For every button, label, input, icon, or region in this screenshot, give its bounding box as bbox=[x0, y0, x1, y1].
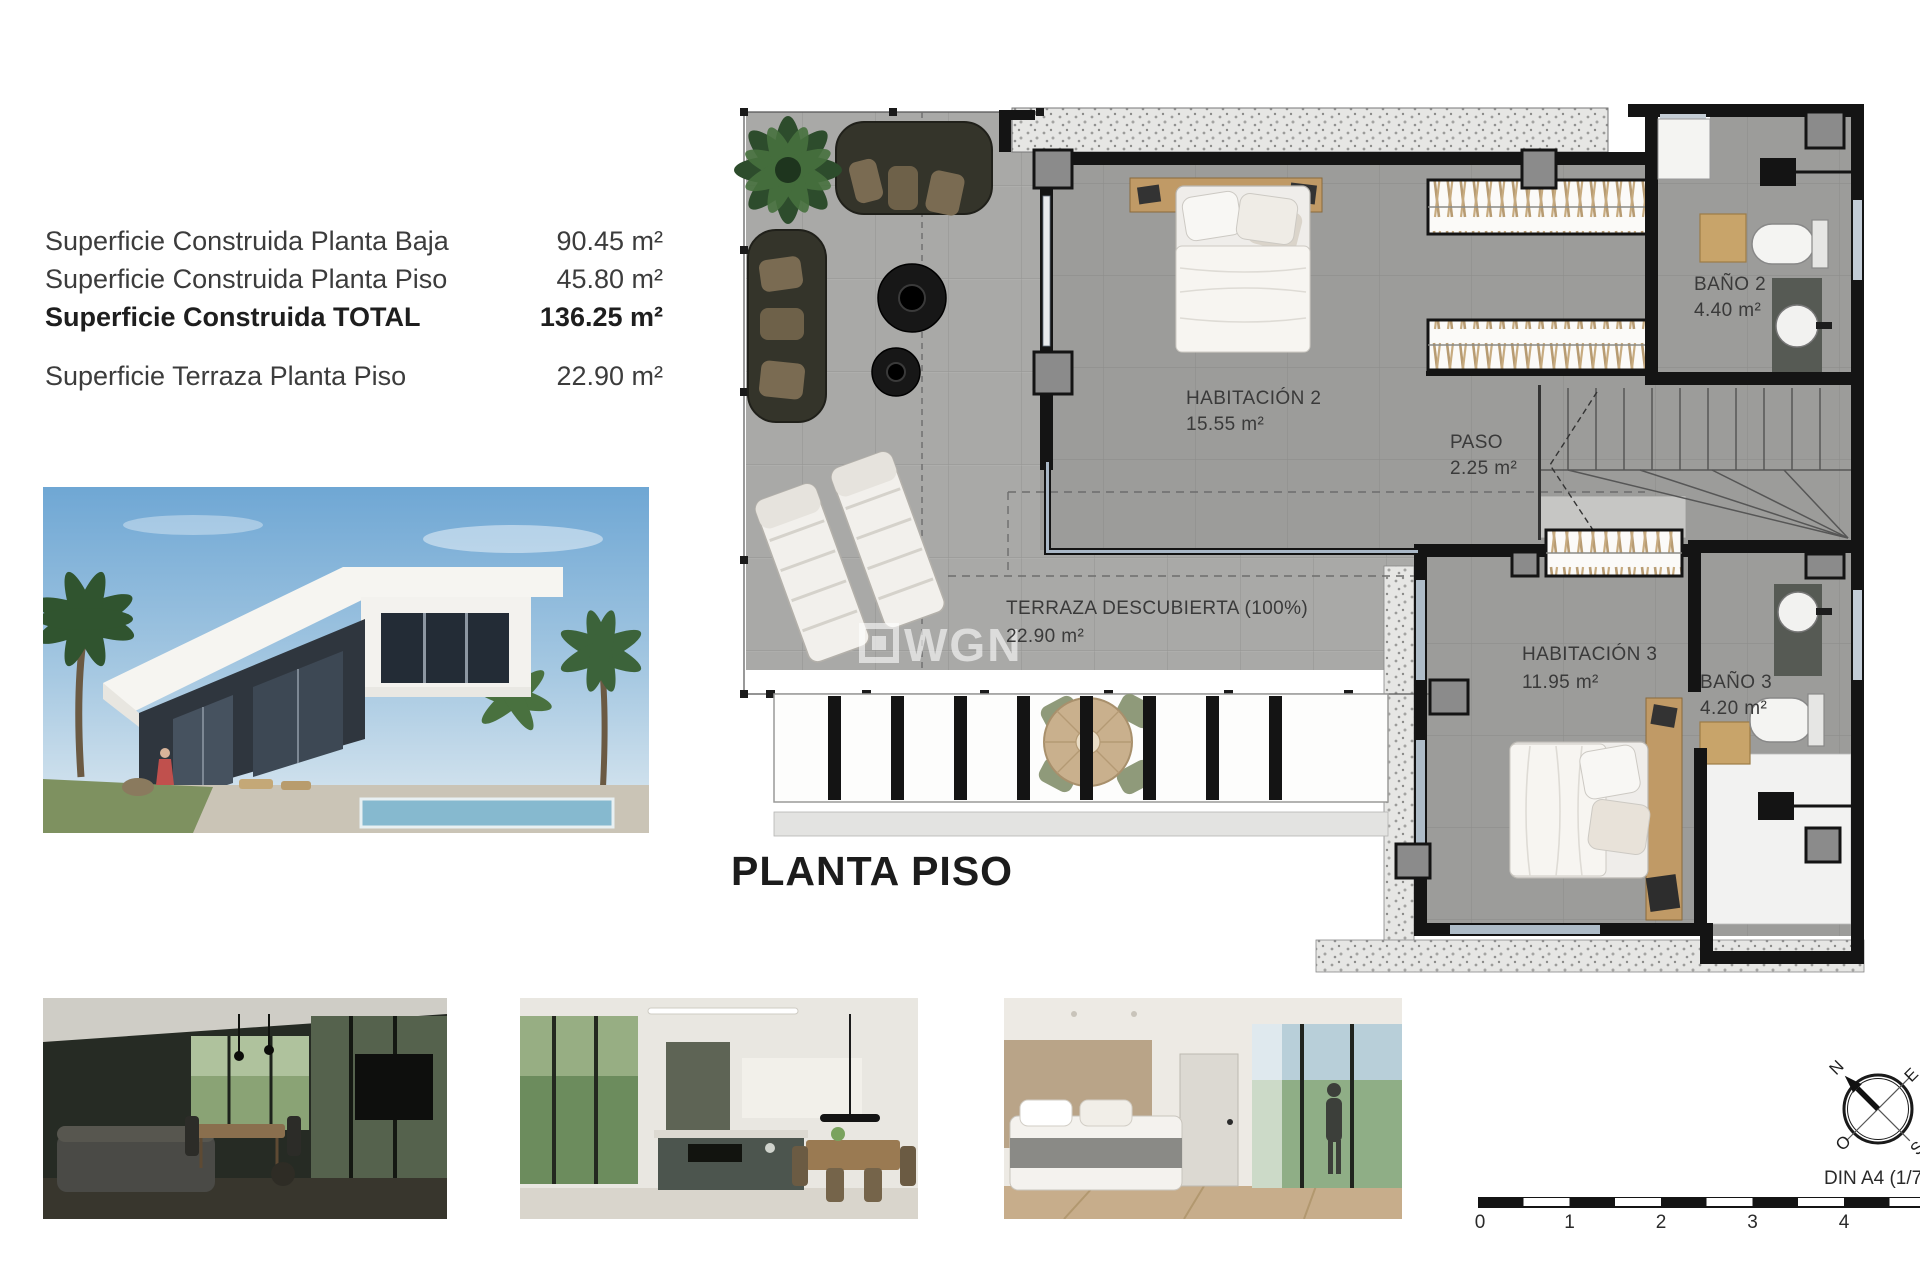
villa-exterior-scene bbox=[43, 487, 649, 833]
chair bbox=[864, 1168, 882, 1202]
sidewalk-strip bbox=[774, 812, 1388, 836]
compass-n: N bbox=[1828, 1057, 1848, 1079]
wall-stub bbox=[999, 110, 1035, 120]
surface-label: Superficie Construida Planta Piso bbox=[45, 260, 447, 298]
toilet bbox=[1752, 224, 1814, 264]
countertop bbox=[654, 1130, 808, 1138]
room-label-bano2: BAÑO 2 bbox=[1694, 273, 1766, 295]
chair bbox=[287, 1116, 301, 1156]
chair bbox=[185, 1116, 199, 1156]
villa-exterior-photo bbox=[43, 487, 649, 833]
scale-tick: 3 bbox=[1747, 1212, 1758, 1234]
scale-bar-segments bbox=[1478, 1197, 1920, 1208]
floor bbox=[520, 1188, 918, 1219]
room-area-habitacion3: 11.95 m² bbox=[1522, 672, 1599, 693]
hob bbox=[688, 1144, 742, 1162]
plan-title: PLANTA PISO bbox=[731, 848, 1013, 895]
room-area-terraza: 22.90 m² bbox=[1006, 626, 1084, 647]
room-area-bano2: 4.40 m² bbox=[1694, 300, 1761, 321]
coffee-table-large bbox=[878, 264, 946, 332]
pendant-bar-lamp bbox=[820, 1114, 880, 1122]
ceiling-spot bbox=[1131, 1011, 1137, 1017]
entry-void bbox=[1658, 119, 1710, 179]
room-label-terraza: TERRAZA DESCUBIERTA (100%) bbox=[1006, 598, 1308, 619]
surface-value: 45.80 m² bbox=[556, 260, 663, 298]
living-room-scene bbox=[43, 998, 447, 1219]
compass-rose: N E O S bbox=[1828, 1030, 1920, 1180]
room-label-paso: PASO bbox=[1450, 432, 1503, 453]
wood-stool bbox=[1700, 722, 1750, 764]
bedroom-scene bbox=[1004, 998, 1402, 1219]
scale-tick: 2 bbox=[1656, 1212, 1667, 1234]
sink-faucet bbox=[765, 1143, 775, 1153]
pillow bbox=[1020, 1100, 1072, 1126]
room-label-habitacion2: HABITACIÓN 2 bbox=[1186, 387, 1321, 409]
pergola bbox=[774, 691, 1388, 836]
room-area-bano3: 4.20 m² bbox=[1700, 698, 1767, 719]
towel-radiator bbox=[1760, 158, 1796, 186]
cloud bbox=[423, 525, 603, 553]
pool bbox=[361, 799, 613, 827]
person-red-dress bbox=[156, 759, 174, 785]
room-area-paso: 2.25 m² bbox=[1450, 458, 1517, 479]
wardrobe bbox=[1428, 320, 1650, 370]
coffee-table bbox=[271, 1162, 295, 1186]
sheer-curtain bbox=[1252, 1024, 1282, 1188]
surface-value: 90.45 m² bbox=[556, 222, 663, 260]
surface-label: Superficie Construida TOTAL bbox=[45, 298, 421, 336]
scale-tick: 4 bbox=[1839, 1212, 1850, 1234]
terrace-sofa-horizontal bbox=[836, 122, 992, 217]
outdoor-chair bbox=[281, 781, 311, 790]
faucet bbox=[1816, 608, 1832, 615]
surface-summary-table: Superficie Construida Planta Baja 90.45 … bbox=[45, 222, 663, 395]
dining-table bbox=[193, 1124, 285, 1138]
cloud bbox=[123, 515, 263, 535]
back-wall bbox=[742, 1058, 862, 1118]
floor-plan: WGN HABITACIÓN 2 15.55 m² PASO 2.25 m² B… bbox=[730, 95, 1870, 975]
wood-floor bbox=[1004, 1186, 1402, 1219]
chair bbox=[900, 1146, 916, 1186]
ceiling-light-strip bbox=[648, 1008, 798, 1014]
door-handle bbox=[1227, 1119, 1233, 1125]
palm-plant bbox=[734, 116, 842, 224]
pillow bbox=[1080, 1100, 1132, 1126]
table-row: Superficie Construida Planta Piso 45.80 … bbox=[45, 260, 663, 298]
scale-tick: 1 bbox=[1564, 1212, 1575, 1234]
table-row-total: Superficie Construida TOTAL 136.25 m² bbox=[45, 298, 663, 336]
bedroom-photo bbox=[1004, 998, 1402, 1219]
room-label-bano3: BAÑO 3 bbox=[1700, 671, 1772, 693]
surface-label: Superficie Terraza Planta Piso bbox=[45, 357, 406, 395]
terrace-sofa-vertical bbox=[748, 230, 826, 422]
sink bbox=[1776, 305, 1818, 347]
fruit-bowl bbox=[831, 1127, 845, 1141]
wood-stool bbox=[1700, 214, 1746, 262]
room-area-habitacion2: 15.55 m² bbox=[1186, 414, 1264, 435]
upper-window bbox=[381, 613, 509, 683]
planter bbox=[122, 778, 154, 796]
coffee-table-small bbox=[872, 348, 920, 396]
surface-value: 22.90 m² bbox=[556, 357, 663, 395]
surface-label: Superficie Construida Planta Baja bbox=[45, 222, 449, 260]
outdoor-chair bbox=[239, 779, 273, 789]
ceiling-spot bbox=[1071, 1011, 1077, 1017]
chair bbox=[826, 1168, 844, 1202]
living-room-photo bbox=[43, 998, 447, 1219]
pendant-lamp bbox=[234, 1051, 244, 1061]
wood-dining-table bbox=[806, 1140, 900, 1170]
kitchen-photo bbox=[520, 998, 918, 1219]
wardrobe bbox=[1546, 530, 1682, 576]
scale-tick: 0 bbox=[1475, 1212, 1486, 1234]
north-needle bbox=[1857, 1088, 1878, 1109]
kitchen-scene bbox=[520, 998, 918, 1219]
compass-s: S bbox=[1907, 1138, 1920, 1159]
tv-panel bbox=[355, 1054, 433, 1120]
stair-edge bbox=[1538, 385, 1541, 540]
gravel-strip-top bbox=[1012, 108, 1608, 152]
surface-value: 136.25 m² bbox=[540, 298, 663, 336]
table-row: Superficie Construida Planta Baja 90.45 … bbox=[45, 222, 663, 260]
chair bbox=[792, 1146, 808, 1186]
room-label-habitacion3: HABITACIÓN 3 bbox=[1522, 643, 1657, 665]
sink bbox=[1778, 592, 1818, 632]
watermark-text: WGN bbox=[904, 619, 1022, 671]
compass-e: E bbox=[1901, 1064, 1920, 1085]
table-row: Superficie Terraza Planta Piso 22.90 m² bbox=[45, 357, 663, 395]
person-head bbox=[160, 748, 170, 758]
pendant-lamp bbox=[264, 1045, 274, 1055]
faucet bbox=[1816, 322, 1832, 329]
gray-throw bbox=[1010, 1138, 1182, 1168]
towel-radiator bbox=[1758, 792, 1794, 820]
